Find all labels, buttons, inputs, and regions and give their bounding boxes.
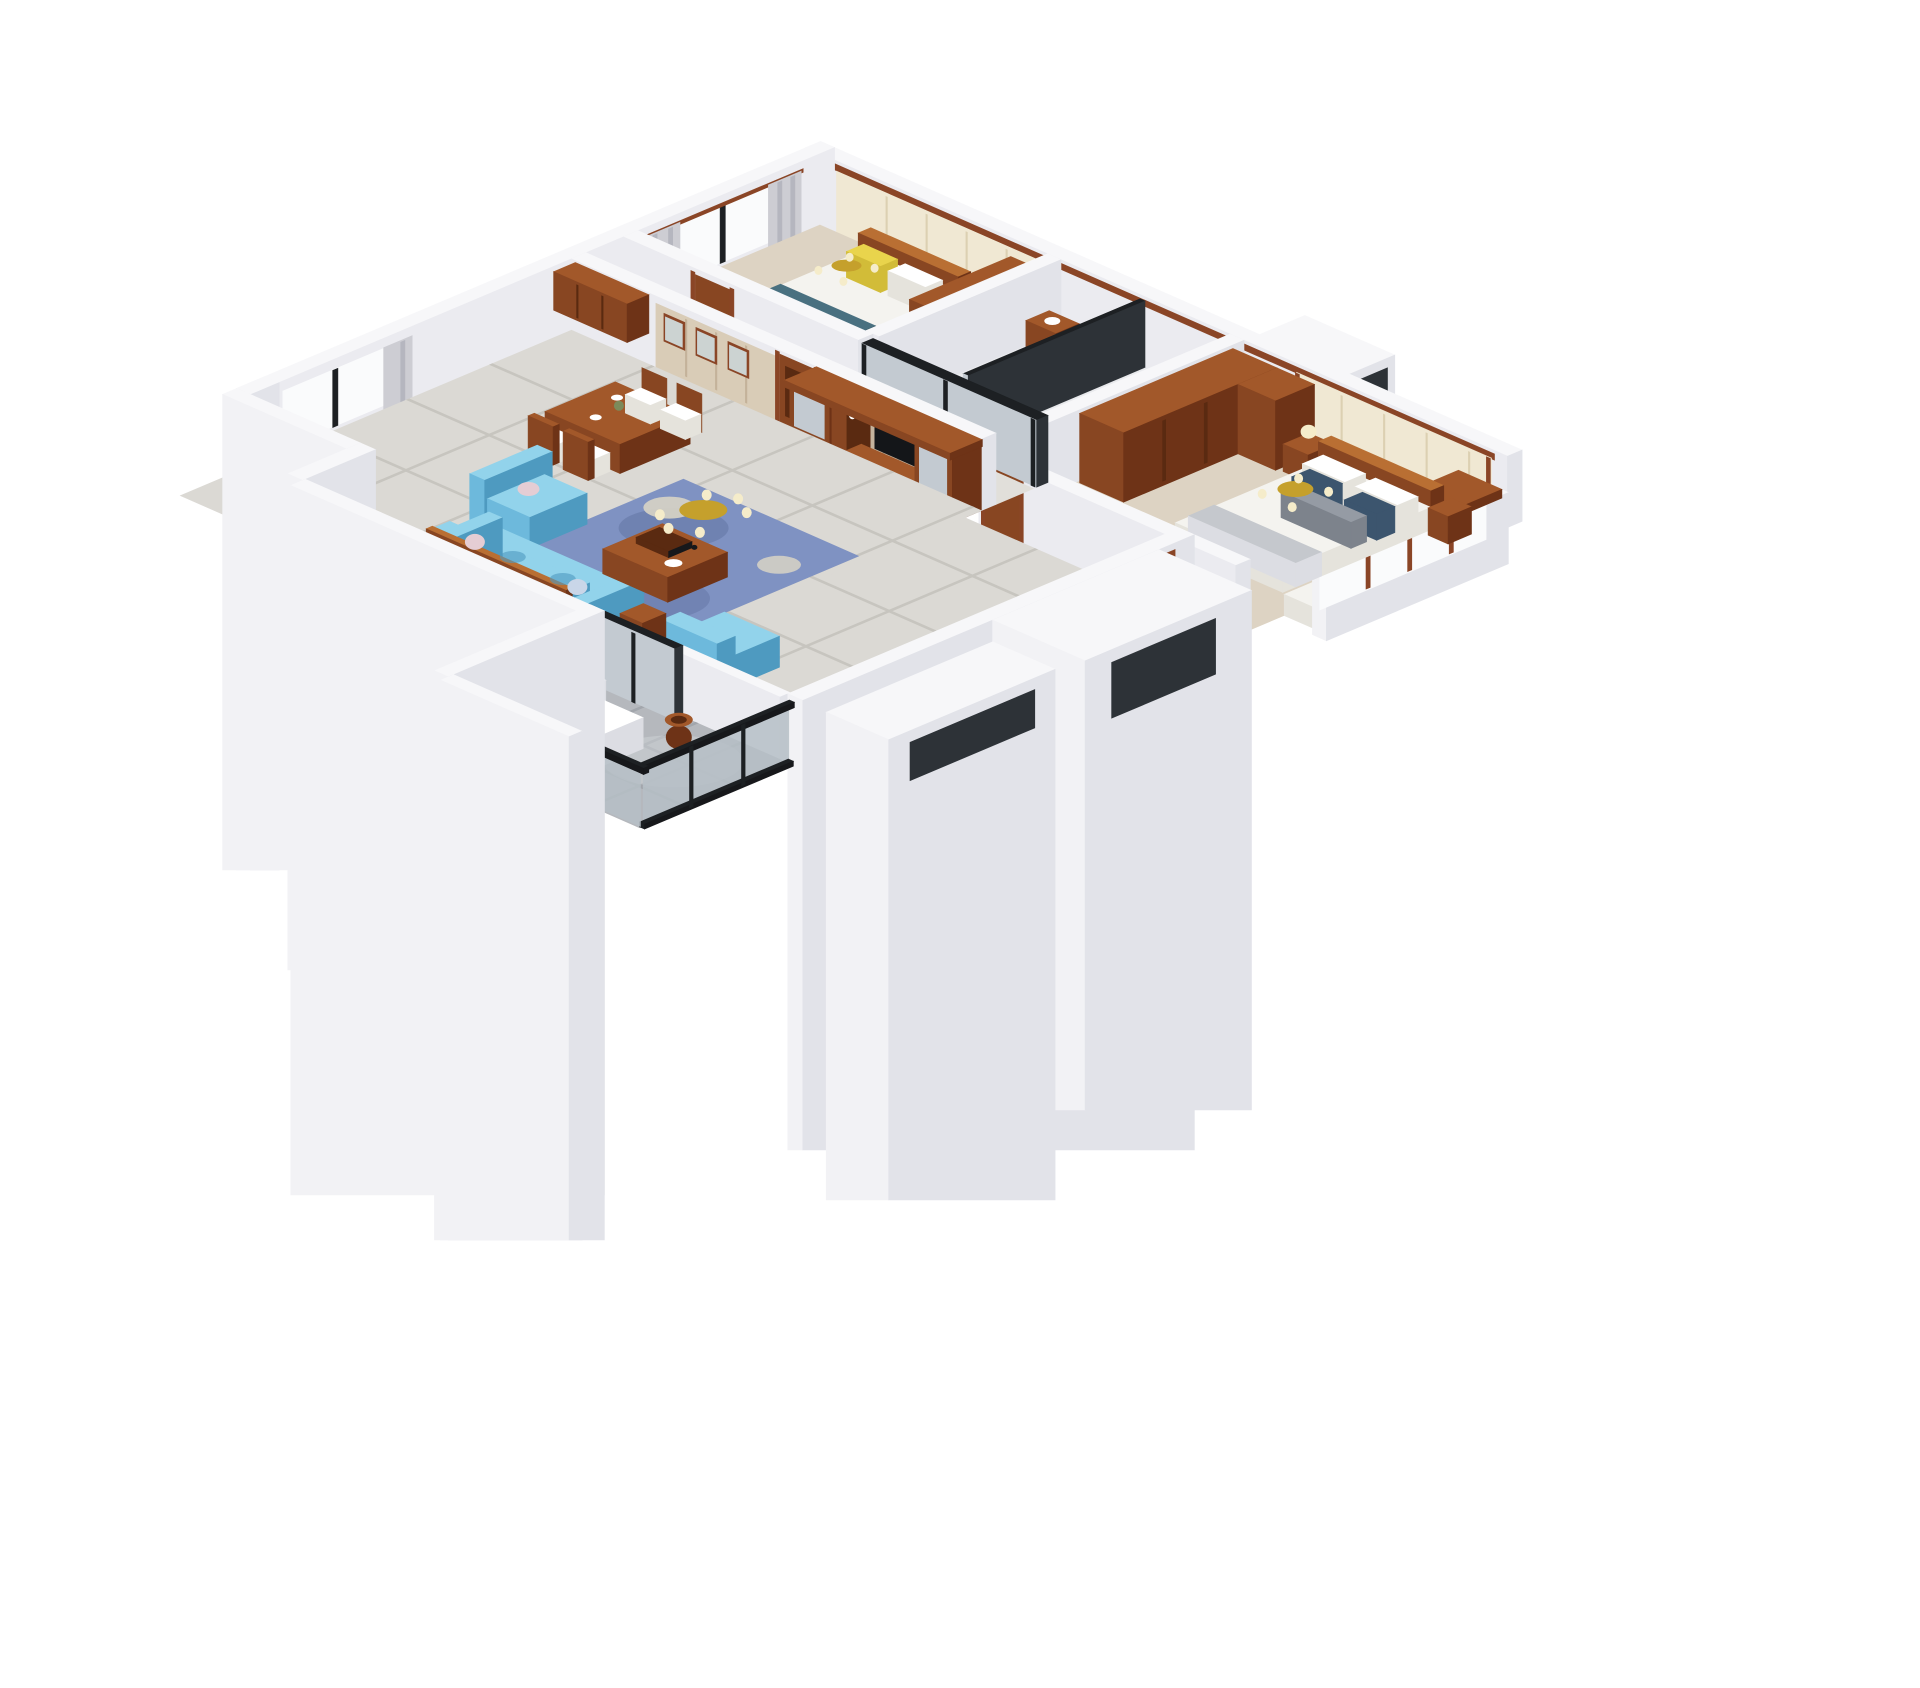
living-sofa-pillow [567, 579, 587, 595]
balcony-sw-parapet-se-face [569, 731, 582, 1240]
balcony-door-post [632, 632, 636, 703]
dining-vase-flowers [614, 401, 624, 411]
master-chandelier-shade [1294, 474, 1303, 484]
dining-panel-seam [685, 319, 687, 377]
bathroom-glass-front-se-face [1037, 415, 1048, 487]
floorplan-3d-render-page [0, 0, 1920, 1688]
balcony-glass-door-se-face [675, 645, 683, 720]
bedroom2-curtain-fold [778, 181, 782, 246]
balcony-sw-parapet-sw-face [441, 680, 569, 1240]
master-chandelier-shade [1288, 502, 1297, 512]
master-lamp-shade [1301, 425, 1317, 439]
master-chandelier-shade [1258, 489, 1267, 499]
utility-curtain-fold [401, 340, 405, 405]
living-coffee-table-cup [691, 545, 697, 550]
bedroom2-chandelier-shade [814, 266, 822, 275]
bedroom2-window-mullion [720, 204, 725, 263]
living-chandelier-shade [655, 509, 665, 520]
living-chandelier-shade [702, 490, 712, 501]
dining-plate [590, 414, 602, 420]
utility-window-mullion [333, 368, 338, 427]
living-chandelier-shade [733, 493, 743, 504]
kitchen-cabinet-seam [577, 285, 579, 319]
dining-plate [611, 395, 623, 401]
living-rug-leaf [757, 556, 801, 574]
living-chandelier-ring [679, 500, 727, 520]
bathroom-glass-post [1031, 418, 1035, 487]
kitchen-cabinet-seam [602, 296, 604, 330]
ne-facade-wall-se-face [1508, 450, 1523, 528]
neighbor-volume-sw-face [826, 712, 889, 1200]
living-chandelier-shade [664, 523, 674, 534]
living-sofa-pillow [465, 534, 485, 550]
living-sofa-cushion-seam [500, 551, 526, 563]
living-chandelier-shade [695, 527, 705, 538]
floorplan-3d-canvas [0, 0, 1920, 1688]
dining-chair-back-se-face [588, 440, 594, 481]
dining-chair-back-se-face [553, 424, 559, 465]
balcony-drum-stool-ring [671, 716, 687, 724]
bedroom2-chandelier-shade [871, 264, 879, 273]
bathroom1-basin [1044, 317, 1060, 325]
living-north-wall-se-face [981, 433, 996, 511]
master-chandelier-shade [1324, 487, 1333, 497]
dining-door-jamb [775, 350, 779, 423]
living-coffee-table-book [664, 559, 682, 567]
bedroom2-chandelier-shade [846, 253, 854, 262]
master-wardrobe-door-seam [1163, 420, 1166, 482]
living-wing-chair-pillow [518, 482, 540, 496]
master-wardrobe-door-seam [1204, 402, 1207, 464]
balcony-railing-post [690, 746, 694, 808]
bedroom2-chandelier-shade [839, 277, 847, 286]
master-chandelier-ring [1277, 481, 1313, 497]
bedroom2-chandelier-ring [832, 260, 862, 272]
bedroom2-curtain-fold [791, 175, 795, 240]
living-chandelier-shade [742, 507, 752, 518]
balcony-railing-post [742, 724, 746, 786]
